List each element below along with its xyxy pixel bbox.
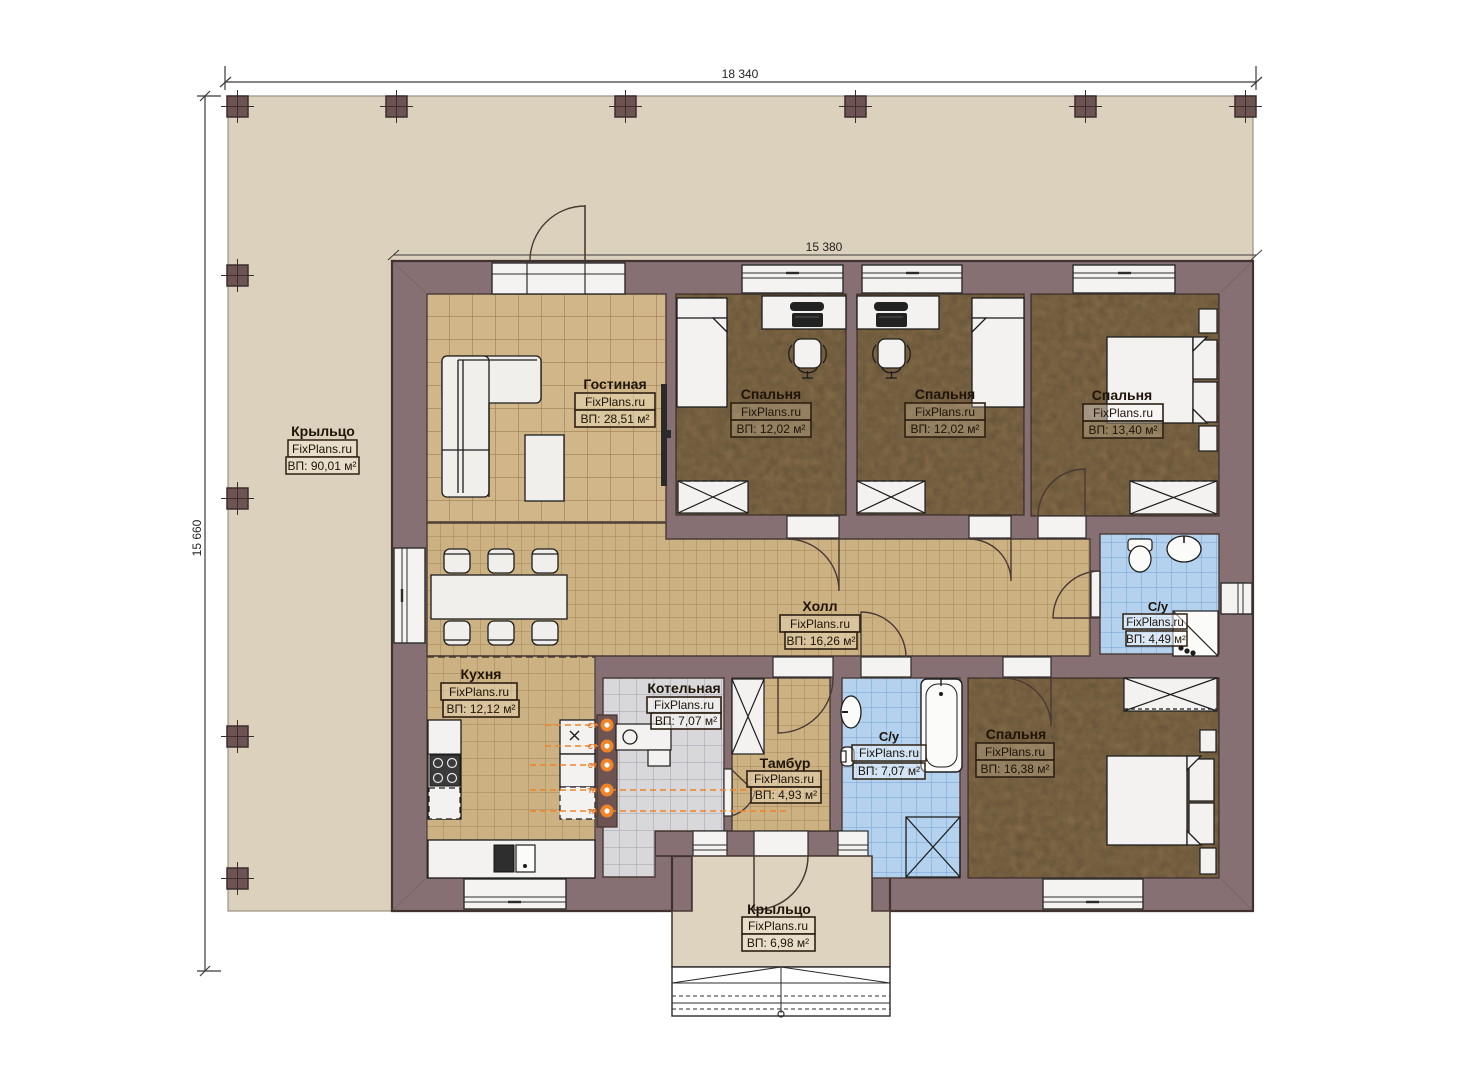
svg-text:Котельная: Котельная [647, 680, 720, 696]
svg-text:Холл: Холл [802, 598, 837, 614]
svg-text:ВП: 7,07 м²: ВП: 7,07 м² [655, 714, 717, 728]
svg-text:СТ: СТ [588, 763, 598, 770]
svg-text:Гостиная: Гостиная [583, 376, 646, 392]
svg-text:FixPlans.ru: FixPlans.ru [754, 772, 814, 786]
svg-text:Спальня: Спальня [741, 386, 801, 402]
svg-text:ВП: 12,02 м²: ВП: 12,02 м² [911, 422, 980, 436]
svg-text:FixPlans.ru: FixPlans.ru [859, 746, 919, 760]
svg-text:FixPlans.ru: FixPlans.ru [748, 919, 808, 933]
svg-text:FixPlans.ru: FixPlans.ru [654, 698, 714, 712]
svg-text:С/у: С/у [879, 729, 900, 744]
svg-text:ВП: 7,07 м²: ВП: 7,07 м² [858, 764, 920, 778]
svg-text:Кухня: Кухня [461, 666, 502, 682]
svg-text:ВП: 12,12 м²: ВП: 12,12 м² [447, 702, 516, 716]
svg-text:ВП: 4,49 м²: ВП: 4,49 м² [1126, 634, 1186, 646]
svg-text:С/у: С/у [1148, 599, 1169, 614]
svg-text:FixPlans.ru: FixPlans.ru [449, 685, 509, 699]
svg-text:ВП: 13,40 м²: ВП: 13,40 м² [1089, 423, 1158, 437]
svg-text:ВП: 28,51 м²: ВП: 28,51 м² [581, 412, 650, 426]
svg-text:ВП: 90,01 м²: ВП: 90,01 м² [288, 459, 357, 473]
svg-text:FixPlans.ru: FixPlans.ru [585, 395, 645, 409]
svg-text:ВП: 6,98 м²: ВП: 6,98 м² [747, 936, 809, 950]
svg-text:Крыльцо: Крыльцо [747, 901, 811, 917]
svg-text:ВП: 4,93 м²: ВП: 4,93 м² [755, 788, 817, 802]
svg-text:ВП: 16,38 м²: ВП: 16,38 м² [981, 762, 1050, 776]
svg-text:FixPlans.ru: FixPlans.ru [985, 745, 1045, 759]
svg-text:Крыльцо: Крыльцо [291, 423, 355, 439]
svg-text:ТП: ТП [588, 809, 597, 816]
svg-text:Спальня: Спальня [1092, 387, 1152, 403]
svg-text:Тамбур: Тамбур [760, 755, 811, 771]
svg-text:СТ: СТ [588, 744, 598, 751]
svg-text:15 660: 15 660 [190, 519, 204, 556]
svg-text:15 380: 15 380 [806, 240, 843, 254]
svg-text:ТП: ТП [588, 788, 597, 795]
svg-text:FixPlans.ru: FixPlans.ru [741, 405, 801, 419]
svg-text:Спальня: Спальня [986, 726, 1046, 742]
svg-text:ВП: 12,02 м²: ВП: 12,02 м² [737, 422, 806, 436]
svg-text:FixPlans.ru: FixPlans.ru [1126, 617, 1184, 629]
svg-text:FixPlans.ru: FixPlans.ru [1093, 406, 1153, 420]
svg-text:18 340: 18 340 [722, 67, 759, 81]
svg-text:ВП: 16,26 м²: ВП: 16,26 м² [787, 634, 856, 648]
svg-text:FixPlans.ru: FixPlans.ru [292, 442, 352, 456]
svg-text:FixPlans.ru: FixPlans.ru [790, 617, 850, 631]
svg-text:FixPlans.ru: FixPlans.ru [915, 405, 975, 419]
svg-text:Спальня: Спальня [915, 386, 975, 402]
svg-text:СТ: СТ [588, 723, 598, 730]
